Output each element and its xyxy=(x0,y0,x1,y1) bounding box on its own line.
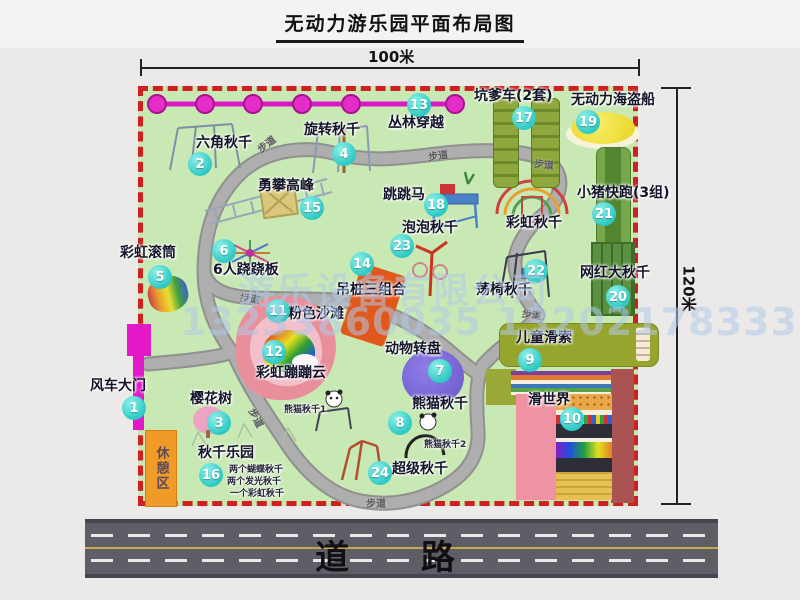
label-animal-turntable: 动物转盘 xyxy=(385,342,441,357)
badge-cherry-tree: 3 xyxy=(207,411,231,435)
label-swing-park: 秋千乐园 xyxy=(198,446,254,461)
label-super-swing: 超级秋千 xyxy=(392,462,448,477)
label-windmill-gate: 风车大门 xyxy=(90,379,146,394)
badge-panda-swing: 8 xyxy=(388,411,412,435)
walkway-label-5: 步道 xyxy=(521,305,543,323)
badge-six-seesaw: 6 xyxy=(212,239,236,263)
dimension-tick-right-bottom xyxy=(661,503,691,505)
badge-bubble-swing: 23 xyxy=(390,234,414,258)
screenshot-stage: 无动力游乐园平面布局图 100米 120米 xyxy=(0,0,800,600)
badge-windmill-gate: 1 xyxy=(122,396,146,420)
rest-area: 休憩区 xyxy=(145,430,177,507)
label-pink-beach: 粉色沙滩 xyxy=(288,307,344,322)
walkway-label-3: 步道 xyxy=(533,155,554,172)
badge-piggy-run: 21 xyxy=(592,202,616,226)
label-swing-park-detail-2: 两个发光秋千 xyxy=(227,478,281,487)
pit-car-track-2 xyxy=(531,98,560,188)
label-swing-park-detail-1: 两个蝴蝶秋千 xyxy=(229,466,283,475)
kids-zipline-ladder xyxy=(636,327,650,361)
label-panda-swing-2: 熊猫秋千2 xyxy=(424,441,466,450)
label-big-swing: 网红大秋千 xyxy=(580,266,650,281)
dimension-tick-top-left xyxy=(140,59,142,76)
walkway-label-2: 步道 xyxy=(427,146,449,164)
badge-hanging-post-combo: 14 xyxy=(350,252,374,276)
slide-world-pink-block xyxy=(516,394,558,500)
badge-pirate-ship: 19 xyxy=(576,110,600,134)
label-rotating-swing: 旋转秋千 xyxy=(304,123,360,138)
label-piggy-run: 小猪快跑(3组) xyxy=(577,186,670,201)
badge-rainbow-bounce-cloud: 12 xyxy=(262,340,286,364)
badge-pit-car: 17 xyxy=(512,106,536,130)
label-pirate-ship: 无动力海盗船 xyxy=(571,93,655,108)
label-peak-climbing: 勇攀高峰 xyxy=(258,179,314,194)
badge-hexagon-swing: 2 xyxy=(188,152,212,176)
badge-jumping-horse: 18 xyxy=(424,193,448,217)
label-hexagon-swing: 六角秋千 xyxy=(196,136,252,151)
label-rainbow-swing: 彩虹秋千 xyxy=(506,216,562,231)
badge-pink-beach: 11 xyxy=(266,299,290,323)
badge-big-swing: 20 xyxy=(606,285,630,309)
badge-slide-world: 10 xyxy=(560,407,584,431)
label-rainbow-bounce-cloud: 彩虹蹦蹦云 xyxy=(256,366,326,381)
dimension-line-top xyxy=(141,67,640,69)
label-kids-zipline: 儿童滑索 xyxy=(516,331,572,346)
label-jungle-crossing: 丛林穿越 xyxy=(388,116,444,131)
road-label: 道 路 xyxy=(0,530,800,579)
badge-animal-turntable: 7 xyxy=(428,359,452,383)
badge-jungle-crossing: 13 xyxy=(407,93,431,117)
label-panda-swing-1: 熊猫秋千1 xyxy=(284,406,326,415)
windmill-gate-top xyxy=(127,324,151,356)
dimension-tick-top-right xyxy=(638,59,640,76)
label-cherry-tree: 樱花树 xyxy=(190,392,232,407)
slide-world-red-strip xyxy=(611,369,634,503)
badge-super-swing: 24 xyxy=(368,461,392,485)
label-pit-car: 坑爹车(2套) xyxy=(474,89,553,104)
dimension-width-label: 100米 xyxy=(368,46,414,67)
label-chair-swing: 荡椅秋千 xyxy=(476,283,532,298)
label-rainbow-roller: 彩虹滚筒 xyxy=(120,246,176,261)
label-slide-world: 滑世界 xyxy=(528,393,570,408)
badge-rainbow-roller: 5 xyxy=(148,265,172,289)
badge-chair-swing: 22 xyxy=(524,259,548,283)
label-six-seesaw: 6人跷跷板 xyxy=(213,263,279,278)
dimension-tick-right-top xyxy=(661,87,691,89)
badge-swing-park: 16 xyxy=(199,463,223,487)
page-title: 无动力游乐园平面布局图 xyxy=(0,9,800,43)
badge-rotating-swing: 4 xyxy=(332,142,356,166)
label-bubble-swing: 泡泡秋千 xyxy=(402,221,458,236)
walkway-label-4: 步道 xyxy=(239,289,261,307)
label-panda-swing: 熊猫秋千 xyxy=(412,397,468,412)
label-swing-park-detail-3: 一个彩虹秋千 xyxy=(230,490,284,499)
label-hanging-post-combo: 吊桩三组合 xyxy=(336,283,406,298)
badge-peak-climbing: 15 xyxy=(300,196,324,220)
label-jumping-horse: 跳跳马 xyxy=(383,188,425,203)
walkway-label-7: 步道 xyxy=(366,495,386,510)
badge-kids-zipline: 9 xyxy=(518,348,542,372)
dimension-height-label: 120米 xyxy=(679,265,700,311)
